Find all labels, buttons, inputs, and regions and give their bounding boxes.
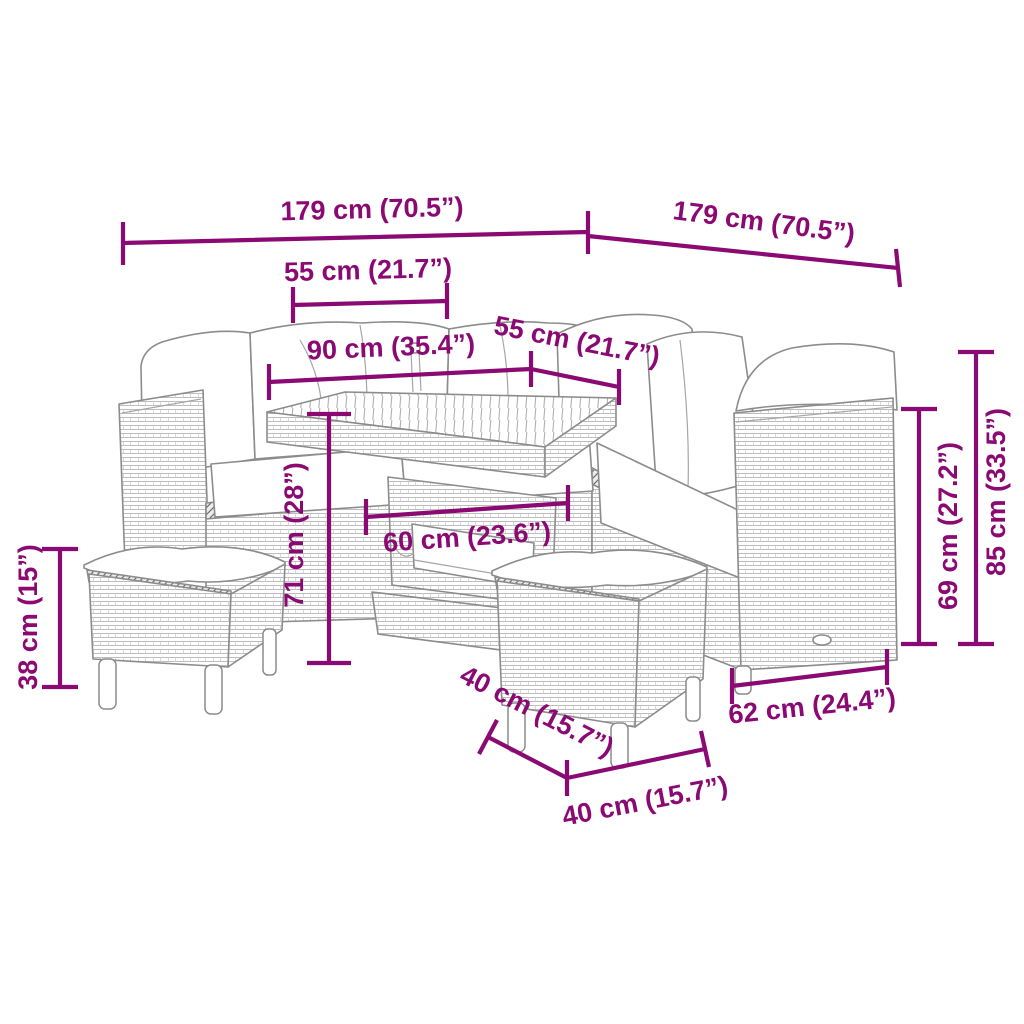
dimension-line <box>901 409 937 644</box>
dim-overall-width-right: 179 cm (70.5”) <box>588 195 900 287</box>
dim-stool-height: 38 cm (15”) <box>13 544 78 690</box>
dimension-label: 85 cm (33.5”) <box>981 408 1011 576</box>
rattan-arm-panel <box>734 398 897 670</box>
sofa-leg <box>735 666 751 694</box>
dimension-label: 62 cm (24.4”) <box>727 682 897 729</box>
dim-armrest-height: 69 cm (27.2”) <box>901 409 963 644</box>
footstool-left <box>84 547 285 714</box>
stool-leg <box>263 629 276 675</box>
sofa-right-arm-panel <box>734 398 897 670</box>
dimension-label: 179 cm (70.5”) <box>671 195 856 249</box>
dimension-label: 69 cm (27.2”) <box>933 442 963 610</box>
dimension-label: 55 cm (21.7”) <box>284 253 453 287</box>
dimension-label: 71 cm (28”) <box>279 462 309 608</box>
stool-leg <box>205 665 222 714</box>
dim-overall-height: 85 cm (33.5”) <box>958 352 1011 644</box>
dim-back-width-left: 55 cm (21.7”) <box>284 253 453 323</box>
dimension-label: 38 cm (15”) <box>13 544 43 690</box>
stool-leg <box>99 659 116 709</box>
dimension-line <box>42 549 78 687</box>
stool-leg <box>686 677 700 721</box>
dimension-label: 179 cm (70.5”) <box>280 192 464 227</box>
diagram-canvas: 179 cm (70.5”) 179 cm (70.5”) 55 cm (21.… <box>0 0 1024 1024</box>
brand-tag <box>813 635 831 645</box>
dimension-label: 40 cm (15.7”) <box>560 770 731 832</box>
dimension-line <box>293 283 447 323</box>
dim-overall-width-left: 179 cm (70.5”) <box>123 192 588 265</box>
